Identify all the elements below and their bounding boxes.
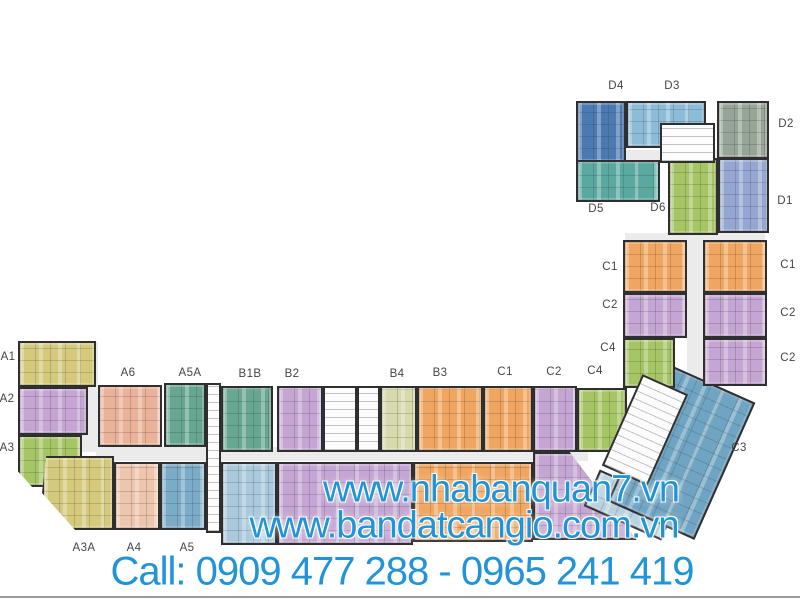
elevator-core-wing	[323, 386, 357, 452]
label-unit-c2-wing-right-bottom: C2	[780, 352, 796, 364]
unit-a2-area	[18, 387, 88, 435]
label-unit-d6: D6	[650, 202, 666, 214]
service-core-wing	[357, 386, 380, 452]
unit-a1-area	[18, 341, 96, 387]
floor-plan-image: D4 D3 D2 D1 D5 D6 C1 C1 C2 C2 C4 C2 A1 A…	[0, 0, 800, 600]
label-unit-d1: D1	[777, 195, 793, 207]
stair-core-wing	[206, 383, 221, 533]
label-unit-c4-row: C4	[587, 365, 603, 377]
label-unit-d3: D3	[664, 80, 680, 92]
unit-b2-area	[277, 386, 323, 452]
label-unit-b1b: B1B	[239, 368, 262, 380]
label-unit-c1-wing-left: C1	[602, 261, 618, 273]
label-unit-d5: D5	[588, 203, 604, 215]
unit-d6-area	[668, 158, 718, 235]
unit-b1b-area	[221, 386, 273, 452]
unit-c2-wing-right-bottom-area	[703, 338, 767, 386]
label-unit-c1-wing-right: C1	[780, 259, 796, 271]
unit-a5a-area	[164, 383, 206, 447]
unit-d4-area	[576, 101, 626, 163]
unit-c2-row-area	[533, 386, 577, 452]
label-unit-c4-wing-left: C4	[600, 342, 616, 354]
unit-c1-wing-left-area	[623, 240, 687, 293]
unit-c1-wing-right-area	[703, 240, 767, 293]
watermark-website-2: www.bandatcangio.com.vn	[249, 505, 678, 548]
label-unit-c2-row: C2	[546, 366, 562, 378]
unit-b3-area	[417, 386, 483, 452]
unit-a5-area	[160, 462, 206, 530]
unit-c2-wing-right-top-area	[703, 293, 767, 338]
label-unit-c1-row: C1	[497, 366, 513, 378]
label-unit-a6: A6	[121, 367, 136, 379]
unit-a6-area	[98, 385, 162, 447]
unit-d2-area	[717, 101, 769, 159]
label-unit-d4: D4	[608, 80, 624, 92]
unit-d1-area	[718, 158, 769, 233]
label-unit-a1: A1	[1, 351, 16, 363]
label-unit-a5a: A5A	[179, 367, 202, 379]
label-unit-b4: B4	[390, 368, 405, 380]
label-unit-a3a: A3A	[73, 542, 96, 554]
unit-c2-wing-left-area	[623, 293, 687, 338]
label-unit-b3: B3	[433, 367, 448, 379]
label-unit-d2: D2	[778, 118, 794, 130]
label-unit-c3: C3	[731, 442, 747, 454]
unit-c1-row-area	[483, 386, 533, 452]
watermark-phone-line: Call: 0909 477 288 - 0965 241 419	[110, 550, 693, 595]
hallway-c-wing	[687, 240, 703, 388]
unit-b4-area	[380, 386, 417, 452]
unit-a4-area	[114, 462, 160, 530]
elevator-core-d-block	[660, 123, 715, 163]
unit-d5-area	[576, 160, 660, 202]
label-unit-a2: A2	[0, 393, 14, 405]
label-unit-c2-wing-left: C2	[602, 299, 618, 311]
label-unit-c2-wing-right-top: C2	[780, 307, 796, 319]
label-unit-b2: B2	[285, 368, 300, 380]
bottom-divider	[0, 596, 800, 598]
unit-a3a-area	[42, 456, 114, 530]
label-unit-a3: A3	[0, 442, 14, 454]
